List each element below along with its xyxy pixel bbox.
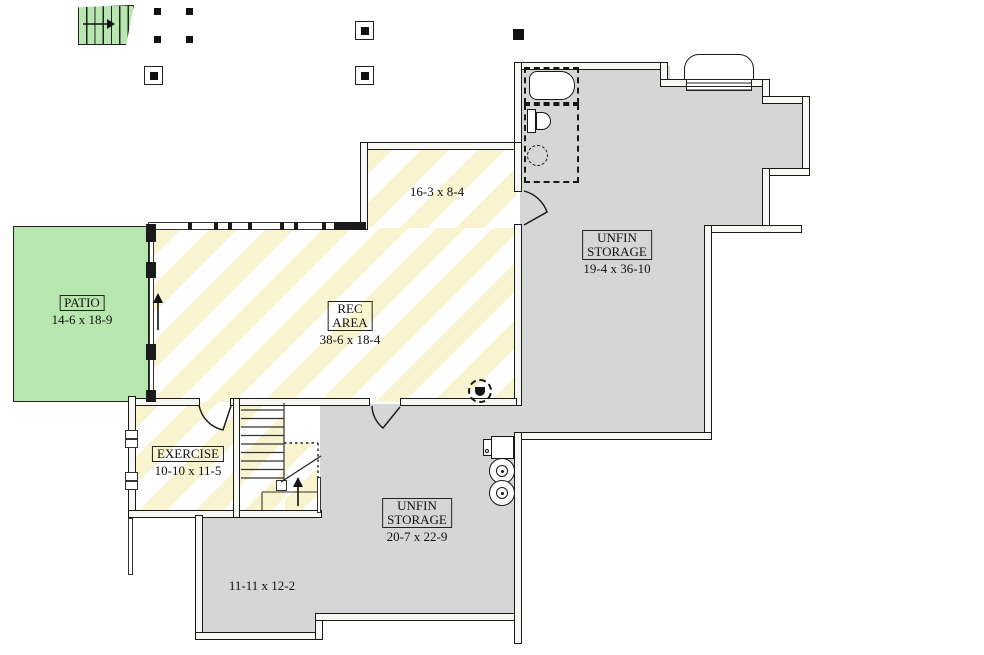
storage-nook-dims: 11-11 x 12-2 <box>229 579 295 593</box>
exercise-dims: 10-10 x 11-5 <box>152 464 224 478</box>
rec-area-label-line2: AREA <box>332 316 367 330</box>
door-swing-icon <box>524 191 547 225</box>
patio-label-group: PATIO 14-6 x 18-9 <box>52 294 113 327</box>
storage-upper-label-line2: STORAGE <box>587 245 647 259</box>
storage-upper-label: UNFIN STORAGE <box>582 230 652 260</box>
storage-lower-label-line2: STORAGE <box>387 513 447 527</box>
up-arrow-icon <box>153 293 163 330</box>
rec-alcove-dims: 16-3 x 8-4 <box>410 185 464 199</box>
door-swing-icon <box>199 405 231 430</box>
window-mullions <box>188 222 326 230</box>
patio-label: PATIO <box>59 295 105 311</box>
exercise-label-group: EXERCISE 10-10 x 11-5 <box>152 445 224 478</box>
rec-area-dims: 38-6 x 18-4 <box>320 333 381 347</box>
understair-lines <box>262 492 318 510</box>
rec-area-label-line1: REC <box>332 302 367 316</box>
rec-area-label: REC AREA <box>327 301 372 331</box>
storage-upper-label-line1: UNFIN <box>587 231 647 245</box>
door-swing-icon <box>372 406 400 428</box>
storage-lower-label-line1: UNFIN <box>387 499 447 513</box>
plan-linework <box>0 0 984 655</box>
storage-upper-label-group: UNFIN STORAGE 19-4 x 36-10 <box>582 230 652 276</box>
stair-treads <box>241 403 284 480</box>
right-arrow-icon <box>83 19 115 29</box>
patio-dims: 14-6 x 18-9 <box>52 313 113 327</box>
storage-lower-label-group: UNFIN STORAGE 20-7 x 22-9 <box>382 498 452 544</box>
storage-upper-dims: 19-4 x 36-10 <box>582 262 652 276</box>
storage-lower-label: UNFIN STORAGE <box>382 498 452 528</box>
basement-floor-plan: PATIO 14-6 x 18-9 REC AREA 38-6 x 18-4 1… <box>0 0 984 655</box>
rec-area-label-group: REC AREA 38-6 x 18-4 <box>320 301 381 347</box>
exercise-label: EXERCISE <box>152 446 224 462</box>
stair-break-line <box>281 456 321 482</box>
storage-lower-dims: 20-7 x 22-9 <box>382 530 452 544</box>
